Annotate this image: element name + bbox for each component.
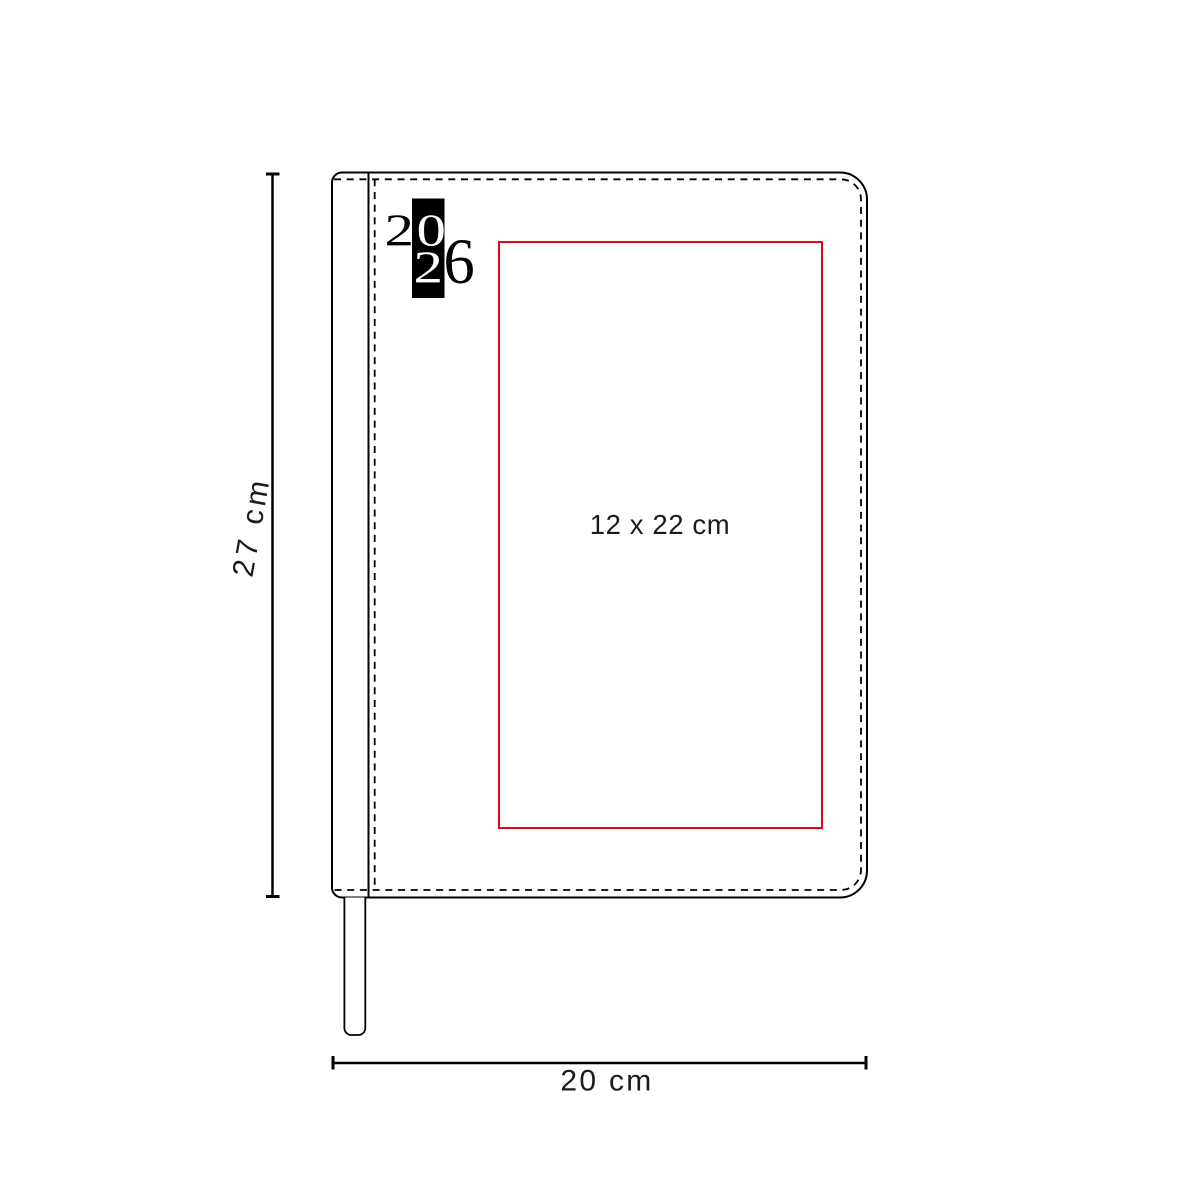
svg-text:12 x 22 cm: 12 x 22 cm	[590, 509, 731, 540]
svg-text:20 cm: 20 cm	[560, 1065, 653, 1098]
svg-text:2: 2	[414, 242, 443, 292]
svg-text:2: 2	[385, 205, 414, 255]
svg-text:6: 6	[444, 225, 475, 297]
